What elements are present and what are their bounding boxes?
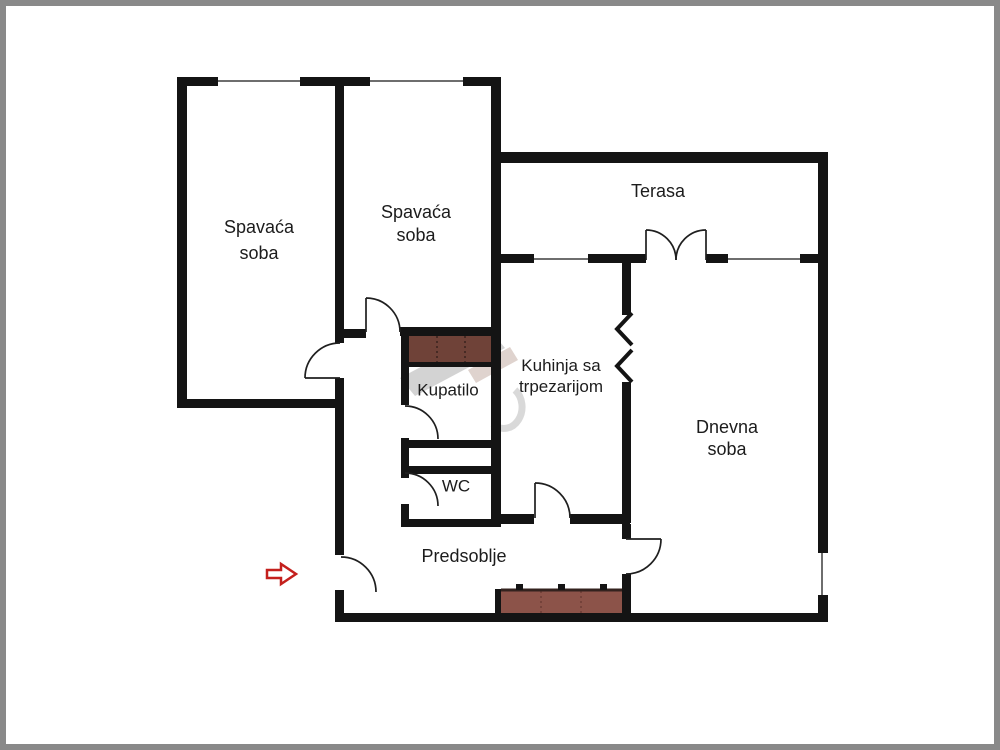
entrance-door-arc [341, 557, 376, 592]
bedroom2-door-arc [366, 298, 400, 332]
terrace-french-door-arc [646, 230, 676, 260]
window-line [728, 258, 800, 260]
wall-break-chevron [617, 313, 632, 345]
closet-tick [558, 584, 565, 590]
room-label-living-room: Dnevna soba [696, 416, 758, 460]
room-label-line: Kupatilo [417, 380, 478, 401]
closet-fill [501, 589, 622, 617]
bedroom1-door-arc [305, 343, 340, 378]
bathroom-door-arc [405, 406, 438, 439]
wall-segment [401, 440, 501, 448]
wall-segment [491, 77, 501, 527]
wall-segment [570, 514, 630, 524]
room-label-line: Spavaća [224, 214, 294, 240]
terrace-french-door-arc [676, 230, 706, 260]
room-label-line: WC [442, 476, 470, 497]
window-line [534, 258, 588, 260]
room-label-bedroom-2: Spavaća soba [381, 201, 451, 247]
window-line [218, 80, 300, 82]
kitchen-door-arc [535, 483, 570, 518]
room-label-hallway: Predsoblje [421, 543, 506, 569]
wardrobe-fill [409, 335, 493, 363]
room-label-line: soba [381, 224, 451, 247]
wall-segment [335, 77, 344, 343]
passage-break-chevrons [617, 313, 632, 382]
floor-plan-drawing [0, 0, 1000, 750]
wall-segment [335, 613, 828, 622]
wc-door-arc [405, 473, 438, 506]
walls [177, 77, 828, 622]
wall-segment [401, 519, 501, 527]
wall-segment [491, 152, 828, 163]
room-label-line: Terasa [631, 178, 685, 204]
floor-plan-image: Spavaća soba Spavaća soba Terasa Kupatil… [0, 0, 1000, 750]
wall-segment [335, 329, 366, 338]
closet-tick [600, 584, 607, 590]
wall-segment [177, 77, 187, 408]
room-label-line: Spavaća [381, 201, 451, 224]
wall-segment [588, 254, 646, 263]
closet-tick [516, 584, 523, 590]
room-label-line: trpezarijom [519, 376, 603, 397]
wall-segment [491, 254, 534, 263]
doors [305, 230, 706, 592]
wall-segment [401, 330, 409, 405]
wall-segment [622, 257, 631, 315]
wall-segment [177, 399, 344, 408]
wall-segment [405, 362, 497, 367]
room-label-line: Predsoblje [421, 543, 506, 569]
room-label-line: soba [224, 240, 294, 266]
room-label-terrace: Terasa [631, 178, 685, 204]
room-label-wc: WC [442, 476, 470, 497]
wall-segment [622, 524, 631, 539]
room-label-kitchen: Kuhinja sa trpezarijom [519, 355, 603, 397]
wall-break-chevron [617, 350, 632, 382]
wall-segment [401, 466, 501, 474]
built-in-wardrobe-top [409, 335, 493, 363]
window-line [821, 553, 823, 595]
room-label-bedroom-1: Spavaća soba [224, 214, 294, 266]
living-room-door-arc [626, 539, 661, 574]
wall-segment [818, 152, 828, 553]
wall-segment [400, 327, 501, 336]
room-label-line: soba [696, 438, 758, 460]
entrance-arrow-icon [267, 564, 296, 584]
hallway-closet [495, 584, 622, 617]
room-label-line: Kuhinja sa [519, 355, 603, 376]
wall-segment [706, 254, 728, 263]
wall-segment [800, 254, 828, 263]
window-line [370, 80, 463, 82]
wall-segment [622, 382, 631, 523]
room-label-line: Dnevna [696, 416, 758, 438]
wall-segment [335, 378, 344, 555]
room-label-bathroom: Kupatilo [417, 380, 478, 401]
closet-left-stub-wall [495, 589, 501, 617]
